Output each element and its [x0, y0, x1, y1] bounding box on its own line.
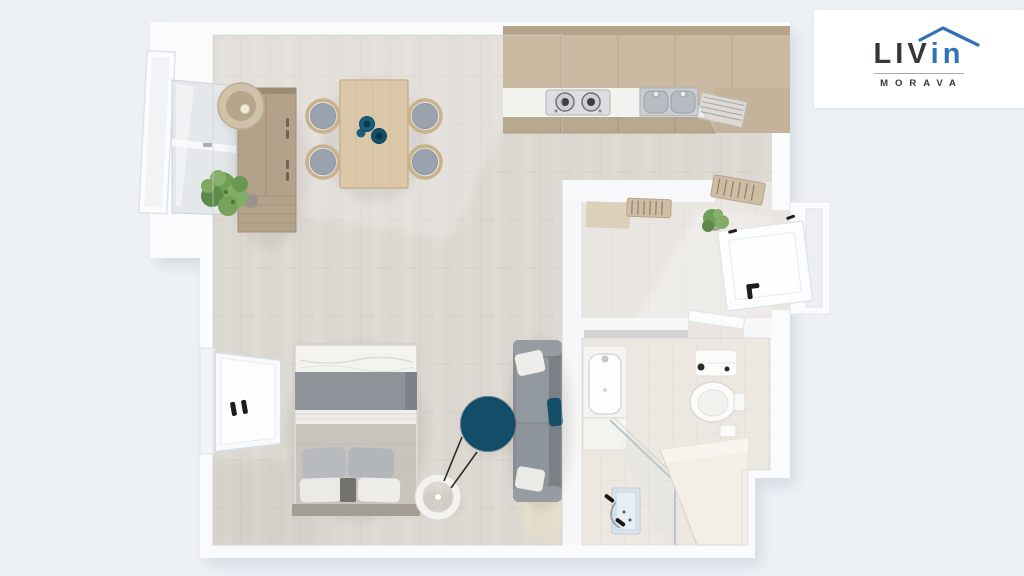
window-lower-left: [200, 348, 281, 454]
table-lamp: [218, 83, 264, 129]
wall-bathroom-divider-right: [744, 318, 772, 338]
sofa: [513, 340, 563, 502]
logo-subtext: MORAVA: [874, 78, 965, 89]
bed-blanket: [295, 372, 417, 410]
kitchen-sink: [640, 88, 698, 116]
dining-chair: [307, 146, 339, 178]
wall-living-divider: [562, 180, 582, 545]
doormat: [586, 201, 631, 229]
radiator-grille: [627, 198, 672, 218]
logo-card: LIVin MORAVA: [814, 10, 1024, 108]
floorplan-page: LIVin MORAVA: [0, 0, 1024, 576]
mirror-shelf: [584, 330, 688, 338]
stove: [546, 90, 610, 115]
bed-pillow: [347, 447, 394, 479]
teal-accent-pillow: [547, 397, 564, 426]
flush-plate: [734, 393, 745, 411]
paper-holder: [720, 425, 736, 437]
dining-chair: [409, 146, 441, 178]
dining-chair: [307, 100, 339, 132]
bed-pillow: [300, 477, 343, 502]
bed-headboard: [292, 504, 420, 516]
roof-icon: [918, 25, 980, 47]
logo: LIVin MORAVA: [874, 30, 965, 89]
kitchen-floor: [562, 131, 772, 182]
kitchen-cabinets: [503, 26, 790, 133]
brand-text-accent: in: [931, 40, 965, 69]
double-bed: [292, 344, 420, 516]
brand-wordmark: LIVin: [874, 40, 965, 69]
dining-chair: [409, 100, 441, 132]
bed-pillow: [358, 477, 401, 502]
logo-divider: [874, 73, 965, 74]
bed-pillow: [301, 447, 347, 479]
